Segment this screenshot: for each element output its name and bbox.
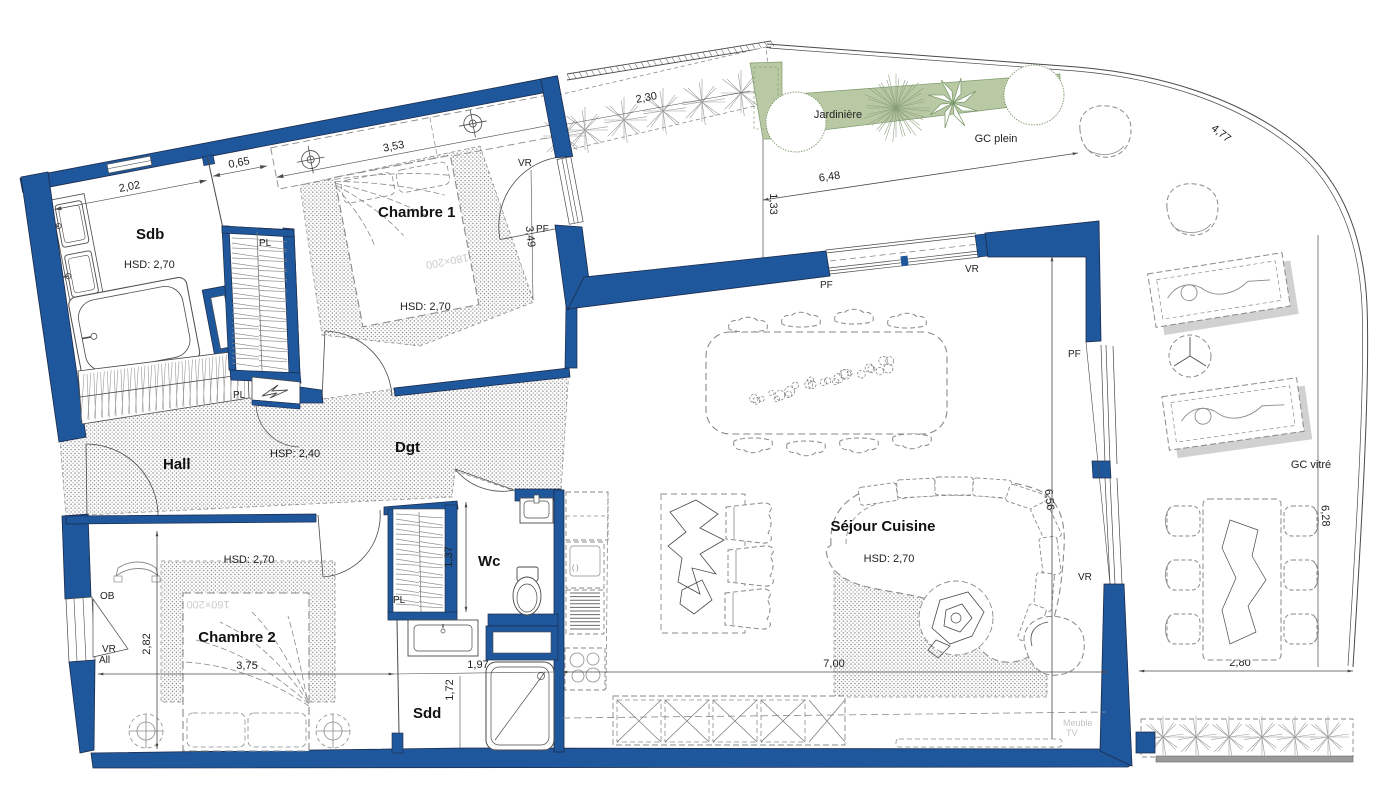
svg-text:HSD: 2,70: HSD: 2,70 [400, 301, 451, 313]
svg-text:PL: PL [259, 238, 272, 249]
svg-text:PF: PF [820, 280, 833, 291]
svg-text:VR: VR [518, 158, 532, 169]
svg-text:PL: PL [393, 595, 406, 606]
svg-text:7,00: 7,00 [823, 658, 844, 670]
svg-text:Hall: Hall [163, 456, 191, 473]
svg-text:6,56: 6,56 [1042, 488, 1056, 511]
svg-text:GC plein: GC plein [975, 133, 1018, 145]
svg-text:( ): ( ) [572, 565, 579, 572]
svg-text:VR: VR [1078, 572, 1092, 583]
svg-text:VR: VR [102, 644, 116, 655]
svg-text:TV: TV [1066, 728, 1078, 738]
svg-text:Sdd: Sdd [413, 705, 441, 722]
svg-text:Dgt: Dgt [395, 439, 420, 456]
svg-text:3,75: 3,75 [236, 660, 257, 672]
svg-text:HSD: 2,70: HSD: 2,70 [864, 553, 915, 565]
svg-text:Séjour Cuisine: Séjour Cuisine [830, 518, 935, 535]
svg-text:1,97: 1,97 [467, 659, 488, 671]
svg-text:All: All [99, 655, 110, 666]
svg-text:HSD: 2,70: HSD: 2,70 [124, 259, 175, 271]
svg-text:2,82: 2,82 [141, 633, 153, 654]
svg-text:Meuble: Meuble [1063, 718, 1093, 728]
svg-text:HSP: 2,40: HSP: 2,40 [270, 448, 320, 460]
svg-text:VR: VR [965, 264, 979, 275]
svg-text:1,72: 1,72 [444, 679, 456, 700]
svg-text:PL: PL [233, 390, 246, 401]
svg-text:Jardinière: Jardinière [814, 109, 862, 121]
svg-text:Sdb: Sdb [136, 226, 164, 243]
svg-text:PF: PF [536, 224, 549, 235]
svg-text:GC vitré: GC vitré [1291, 459, 1331, 471]
svg-text:1,33: 1,33 [767, 193, 779, 214]
svg-text:6,28: 6,28 [1318, 505, 1331, 527]
svg-text:PF: PF [1068, 349, 1081, 360]
svg-text:160×200: 160×200 [186, 598, 229, 610]
svg-text:Chambre 2: Chambre 2 [198, 629, 276, 646]
svg-text:Chambre 1: Chambre 1 [378, 204, 456, 221]
svg-text:Wc: Wc [478, 553, 501, 570]
svg-text:OB: OB [100, 591, 115, 602]
svg-text:1,37: 1,37 [443, 546, 455, 567]
svg-text:HSD: 2,70: HSD: 2,70 [224, 554, 275, 566]
